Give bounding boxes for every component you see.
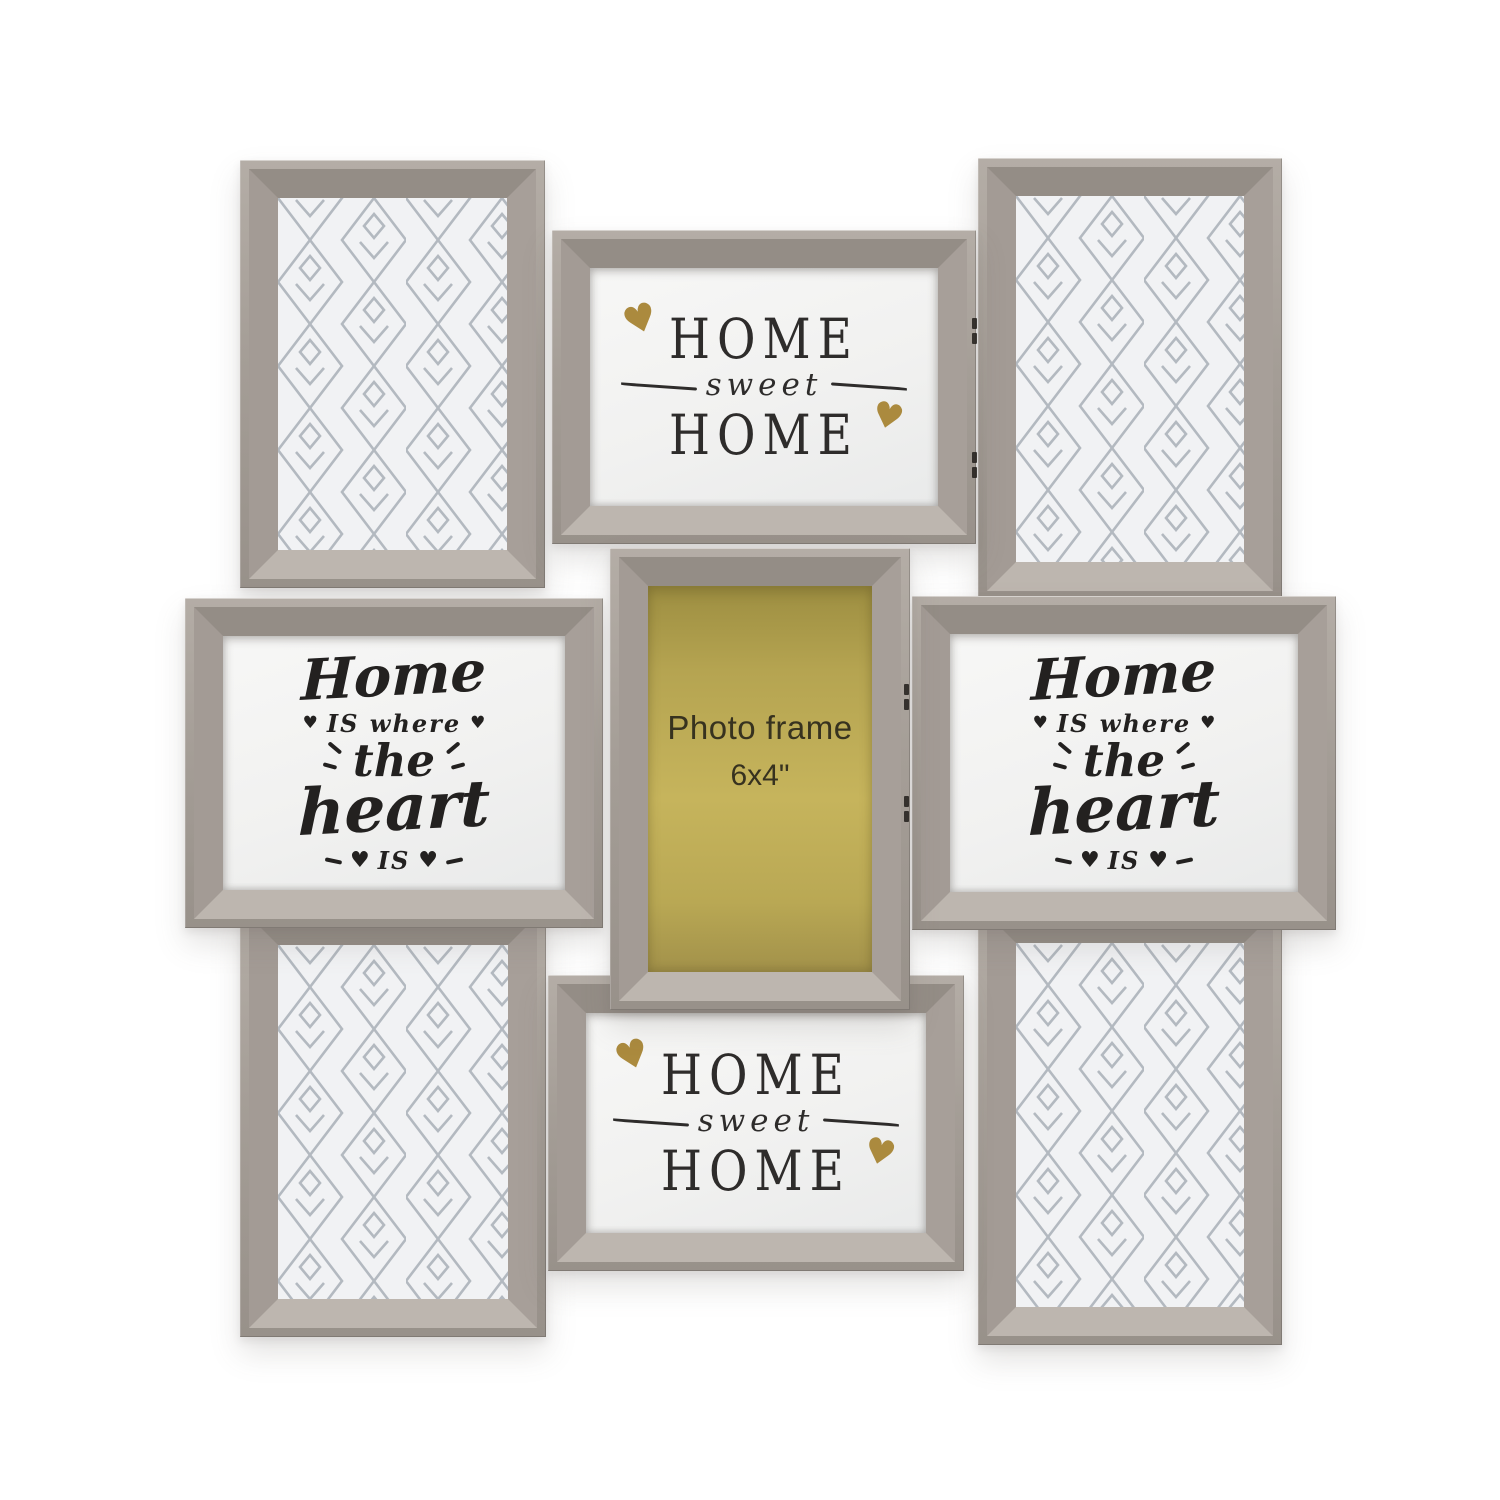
frame-rim: Home ♥ IS where ♥ the (185, 598, 603, 928)
frame-bevel (249, 169, 536, 579)
black-heart-icon: ♥ (303, 715, 318, 732)
frame-bevel: Home ♥ IS where ♥ the (194, 607, 594, 919)
product-photo-collage-frame: ♥ HOME sweet HOME ♥ (0, 0, 1500, 1500)
frame-bevel: ♥ HOME sweet HOME ♥ (561, 239, 967, 535)
frame-bevel: Photo frame 6x4" (619, 557, 901, 1001)
frame-middle-left: Home ♥ IS where ♥ the (185, 598, 603, 928)
dash-tick (325, 857, 342, 864)
ray-tick (1053, 762, 1067, 769)
black-heart-icon: ♥ (1148, 850, 1168, 872)
word-is: IS (378, 846, 411, 875)
frame-rim (240, 160, 545, 588)
frame-rim (978, 905, 1282, 1345)
lattice-pattern (278, 945, 508, 1299)
yellow-size-insert: Photo frame 6x4" (648, 586, 872, 972)
hinge-clip (972, 333, 977, 344)
dash-tick (446, 857, 463, 864)
hinge-clip (904, 684, 909, 695)
hinge-clip (972, 318, 977, 329)
photo-frame-size: 6x4" (730, 759, 789, 793)
lattice-pattern (278, 198, 507, 550)
home-sweet-home-top-word: HOME (661, 1047, 851, 1102)
gold-heart-icon: ♥ (610, 1031, 654, 1078)
lattice-pattern (1016, 196, 1244, 562)
word-home: Home (1031, 646, 1217, 707)
home-sweet-home-insert: ♥ HOME sweet HOME ♥ (586, 1013, 926, 1233)
black-heart-icon: ♥ (1033, 715, 1048, 732)
home-is-where-insert: Home ♥ IS where ♥ the (223, 636, 565, 890)
ray-tick (1058, 741, 1073, 754)
black-heart-icon: ♥ (470, 715, 485, 732)
black-heart-icon: ♥ (350, 850, 370, 872)
lattice-insert (1016, 943, 1244, 1307)
word-heart: heart (1028, 774, 1221, 843)
home-is-where-insert: Home ♥ IS where ♥ the (950, 634, 1298, 892)
lattice-insert (1016, 196, 1244, 562)
ray-tick (323, 762, 337, 769)
frame-rim: Photo frame 6x4" (610, 548, 910, 1010)
frame-rim (978, 158, 1282, 600)
lattice-insert (278, 198, 507, 550)
word-heart: heart (298, 774, 491, 843)
black-heart-icon: ♥ (418, 850, 438, 872)
frame-bottom-right (978, 905, 1282, 1345)
home-sweet-home-middle-word: sweet (706, 367, 823, 403)
frame-bevel: ♥ HOME sweet HOME ♥ (557, 984, 955, 1262)
frame-bevel (249, 916, 537, 1328)
swash-line-left (621, 382, 697, 390)
hinge-clip (972, 452, 977, 463)
home-sweet-home-top-word: HOME (669, 311, 859, 366)
hinge-clip (904, 796, 909, 807)
frame-bottom-center: ♥ HOME sweet HOME ♥ (548, 975, 964, 1271)
frame-bevel (987, 914, 1273, 1336)
frame-middle-right: Home ♥ IS where ♥ the (912, 596, 1336, 930)
frame-rim: ♥ HOME sweet HOME ♥ (552, 230, 976, 544)
frame-bevel: Home ♥ IS where ♥ the (921, 605, 1327, 921)
word-is: IS (1108, 846, 1141, 875)
black-heart-icon: ♥ (1200, 715, 1215, 732)
lattice-pattern (1016, 943, 1244, 1307)
black-heart-icon: ♥ (1080, 850, 1100, 872)
word-home: Home (301, 646, 487, 707)
hinge-clip (972, 467, 977, 478)
hinge-clip (904, 699, 909, 710)
frame-top-left (240, 160, 545, 588)
frame-rim: ♥ HOME sweet HOME ♥ (548, 975, 964, 1271)
swash-line-right (831, 382, 907, 390)
ray-tick (1176, 741, 1191, 754)
gold-heart-icon: ♥ (618, 295, 662, 342)
frame-center: Photo frame 6x4" (610, 548, 910, 1010)
lattice-insert (278, 945, 508, 1299)
home-sweet-home-middle-word: sweet (698, 1103, 815, 1139)
frame-bottom-left (240, 907, 546, 1337)
hinge-clip (904, 811, 909, 822)
home-sweet-home-bottom-word: HOME (669, 407, 859, 462)
frame-bevel (987, 167, 1273, 591)
ray-tick (328, 741, 343, 754)
frame-top-center: ♥ HOME sweet HOME ♥ (552, 230, 976, 544)
dash-tick (1176, 857, 1193, 864)
swash-line-left (613, 1118, 689, 1126)
home-sweet-home-insert: ♥ HOME sweet HOME ♥ (590, 268, 938, 506)
frame-top-right (978, 158, 1282, 600)
photo-frame-label: Photo frame (667, 709, 852, 747)
ray-tick (446, 741, 461, 754)
home-sweet-home-bottom-word: HOME (661, 1143, 851, 1198)
dash-tick (1055, 857, 1072, 864)
frame-rim: Home ♥ IS where ♥ the (912, 596, 1336, 930)
swash-line-right (823, 1118, 899, 1126)
frame-rim (240, 907, 546, 1337)
